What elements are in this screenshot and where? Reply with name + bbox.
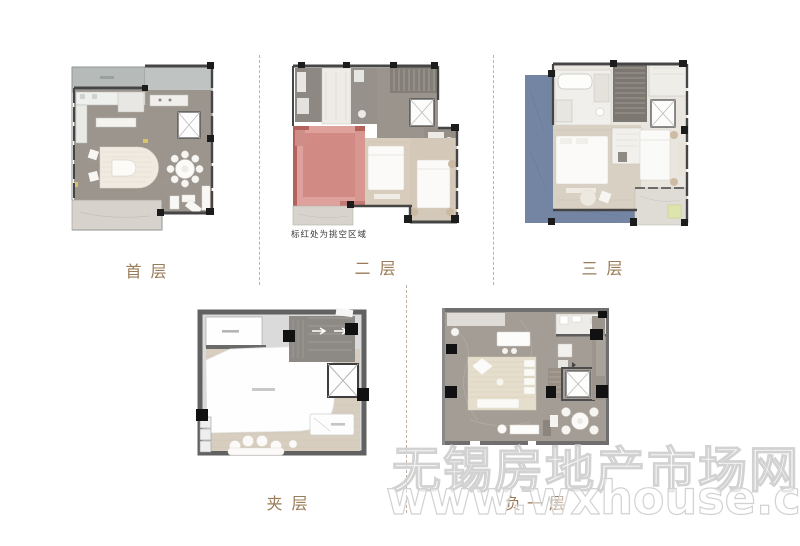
island-counter — [96, 118, 136, 127]
stairs — [613, 64, 647, 122]
bathtub — [558, 74, 592, 89]
mezzanine-plan — [194, 304, 372, 462]
bedroom-2-bed — [640, 130, 670, 180]
first-floor-plan — [70, 62, 218, 234]
bed-1 — [368, 146, 404, 190]
floor-label-third: 三层 — [572, 255, 631, 279]
bed-2 — [417, 160, 450, 208]
elevator-icon — [562, 368, 594, 400]
elevator-icon — [178, 112, 200, 138]
floorplan-sheet: 首层 — [0, 0, 800, 546]
void-note: 标红处为挑空区域 — [291, 228, 367, 240]
elevator-icon — [651, 100, 675, 127]
elevator-icon — [328, 364, 358, 397]
terrace-bottom — [72, 200, 162, 230]
piano — [112, 160, 136, 176]
watermark-url: www.wxhouse.com — [386, 471, 800, 525]
counter — [497, 332, 530, 346]
stairs — [390, 67, 438, 93]
elevator-icon — [410, 99, 434, 126]
floor-label-second: 二层 — [345, 255, 404, 279]
basement-plan — [438, 302, 614, 456]
column-separator — [259, 55, 260, 285]
third-floor-plan — [520, 60, 692, 230]
column-separator — [493, 55, 494, 285]
home-theater-rug — [468, 357, 536, 410]
floor-label-mezzanine: 夹层 — [257, 490, 316, 514]
balcony — [293, 206, 353, 225]
floor-label-basement: 负一层 — [499, 490, 571, 514]
stairs — [289, 316, 355, 362]
floor-label-first: 首层 — [116, 258, 175, 282]
column-separator — [406, 285, 407, 513]
second-floor-plan — [288, 60, 462, 228]
dining-table — [167, 151, 203, 187]
void-area — [293, 126, 365, 206]
